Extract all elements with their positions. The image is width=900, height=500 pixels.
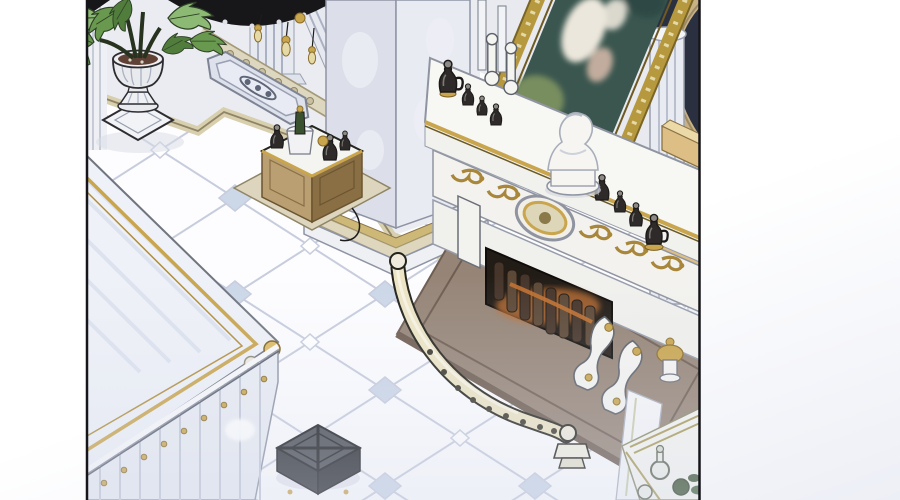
- bottom-vignette: [87, 0, 699, 500]
- palace-interior-illustration: [0, 0, 900, 500]
- comic-panel: [0, 0, 900, 500]
